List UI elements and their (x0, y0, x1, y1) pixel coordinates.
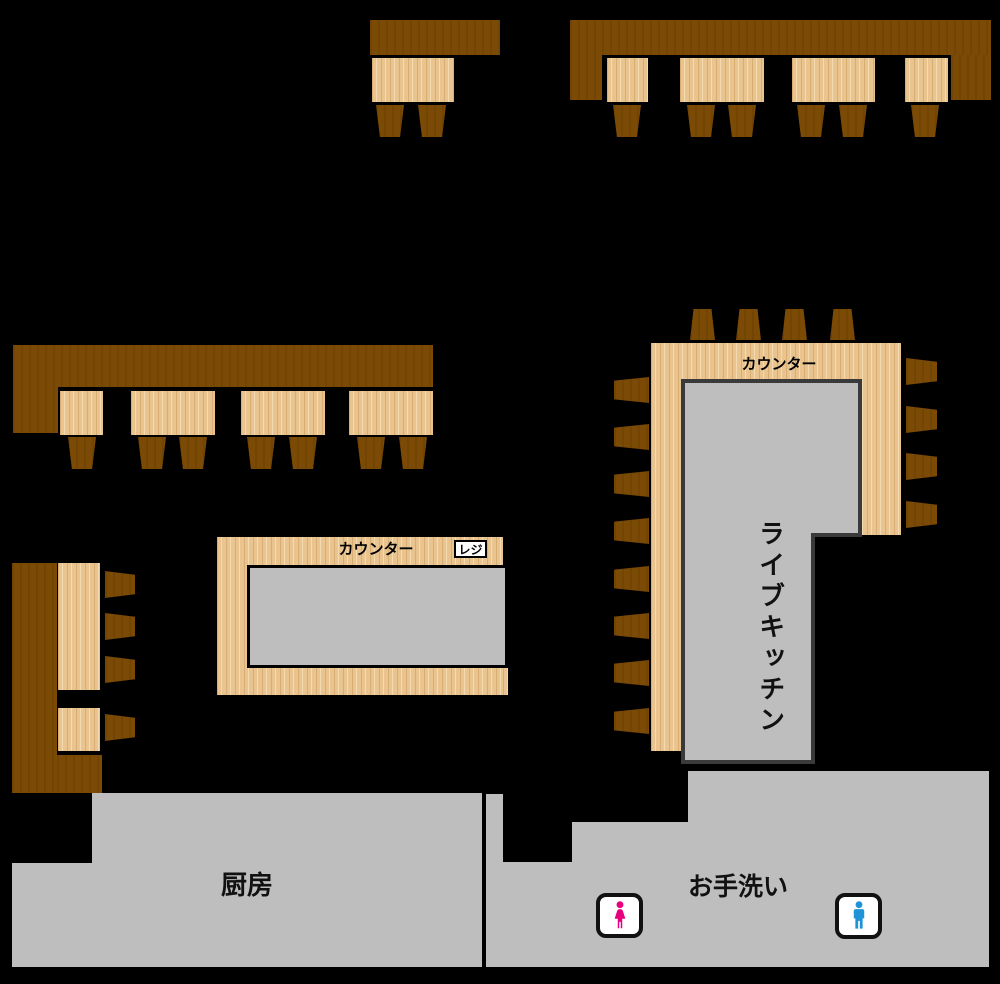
register-box: レジ (454, 540, 487, 558)
stool (614, 518, 649, 544)
dining-table (58, 708, 100, 751)
stool (138, 437, 166, 469)
male-restroom-icon (846, 900, 872, 932)
dining-table (680, 58, 764, 102)
stool (797, 105, 825, 137)
dining-table (241, 391, 325, 435)
kitchen-counter-label: カウンター (733, 356, 825, 373)
bench-seat (370, 20, 500, 55)
stool (782, 309, 807, 340)
bench-seat (570, 55, 602, 100)
stool (68, 437, 96, 469)
dining-table (60, 391, 103, 435)
stool (614, 424, 649, 450)
stool (247, 437, 275, 469)
stool (105, 656, 135, 683)
stool (728, 105, 756, 137)
stool (906, 406, 937, 433)
bench-seat (13, 345, 433, 387)
kitchen-counter (651, 383, 685, 751)
stool (690, 309, 715, 340)
bench-seat (13, 387, 58, 433)
restaurant-floorplan: カウンター レジ カウンター ライブキッチン 厨房 お手洗い (0, 0, 1000, 984)
stool (614, 660, 649, 686)
dining-table (905, 58, 948, 102)
dining-table (792, 58, 875, 102)
kitchen-counter (858, 383, 901, 535)
stool (687, 105, 715, 137)
dining-table (349, 391, 433, 435)
stool (105, 613, 135, 640)
dining-table (372, 58, 454, 102)
bench-seat (12, 563, 57, 793)
stool (911, 105, 939, 137)
stool (906, 501, 937, 528)
stool (105, 571, 135, 598)
stool (614, 377, 649, 403)
stool (736, 309, 761, 340)
stool (105, 714, 135, 741)
dining-table (607, 58, 648, 102)
stool (614, 566, 649, 592)
center-counter-label: カウンター (330, 541, 422, 558)
live-kitchen-label: ライブキッチン (755, 503, 784, 753)
bench-seat (570, 20, 991, 55)
female-restroom-icon (607, 900, 633, 932)
restroom-label: お手洗い (658, 873, 818, 901)
stool (839, 105, 867, 137)
bench-seat (57, 755, 102, 793)
stool (614, 471, 649, 497)
stool (906, 358, 937, 385)
counter-inner-area (247, 565, 508, 668)
stool (906, 453, 937, 480)
stool (357, 437, 385, 469)
female-restroom-sign (596, 893, 643, 938)
stool (830, 309, 855, 340)
stool (613, 105, 641, 137)
kitchen-label: 厨房 (187, 872, 307, 901)
stool (399, 437, 427, 469)
stool (179, 437, 207, 469)
restroom-area (486, 771, 989, 967)
stool (376, 105, 404, 137)
stool (614, 708, 649, 734)
stool (614, 613, 649, 639)
male-restroom-sign (835, 893, 882, 939)
bench-seat (951, 55, 991, 100)
dining-table (58, 563, 100, 690)
stool (418, 105, 446, 137)
stool (289, 437, 317, 469)
dining-table (131, 391, 215, 435)
